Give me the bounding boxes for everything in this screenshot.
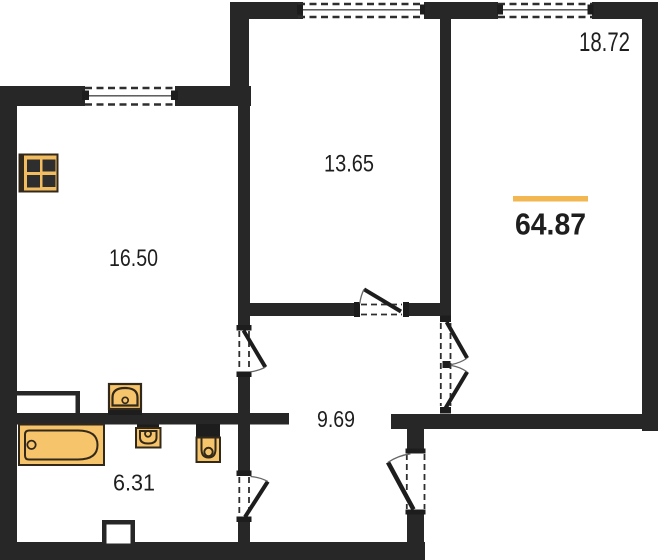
svg-text:9.69: 9.69 (317, 406, 355, 432)
svg-text:16.50: 16.50 (109, 245, 158, 272)
svg-text:18.72: 18.72 (579, 27, 630, 57)
svg-text:64.87: 64.87 (515, 207, 586, 242)
svg-text:6.31: 6.31 (113, 470, 155, 496)
svg-text:13.65: 13.65 (324, 151, 374, 178)
